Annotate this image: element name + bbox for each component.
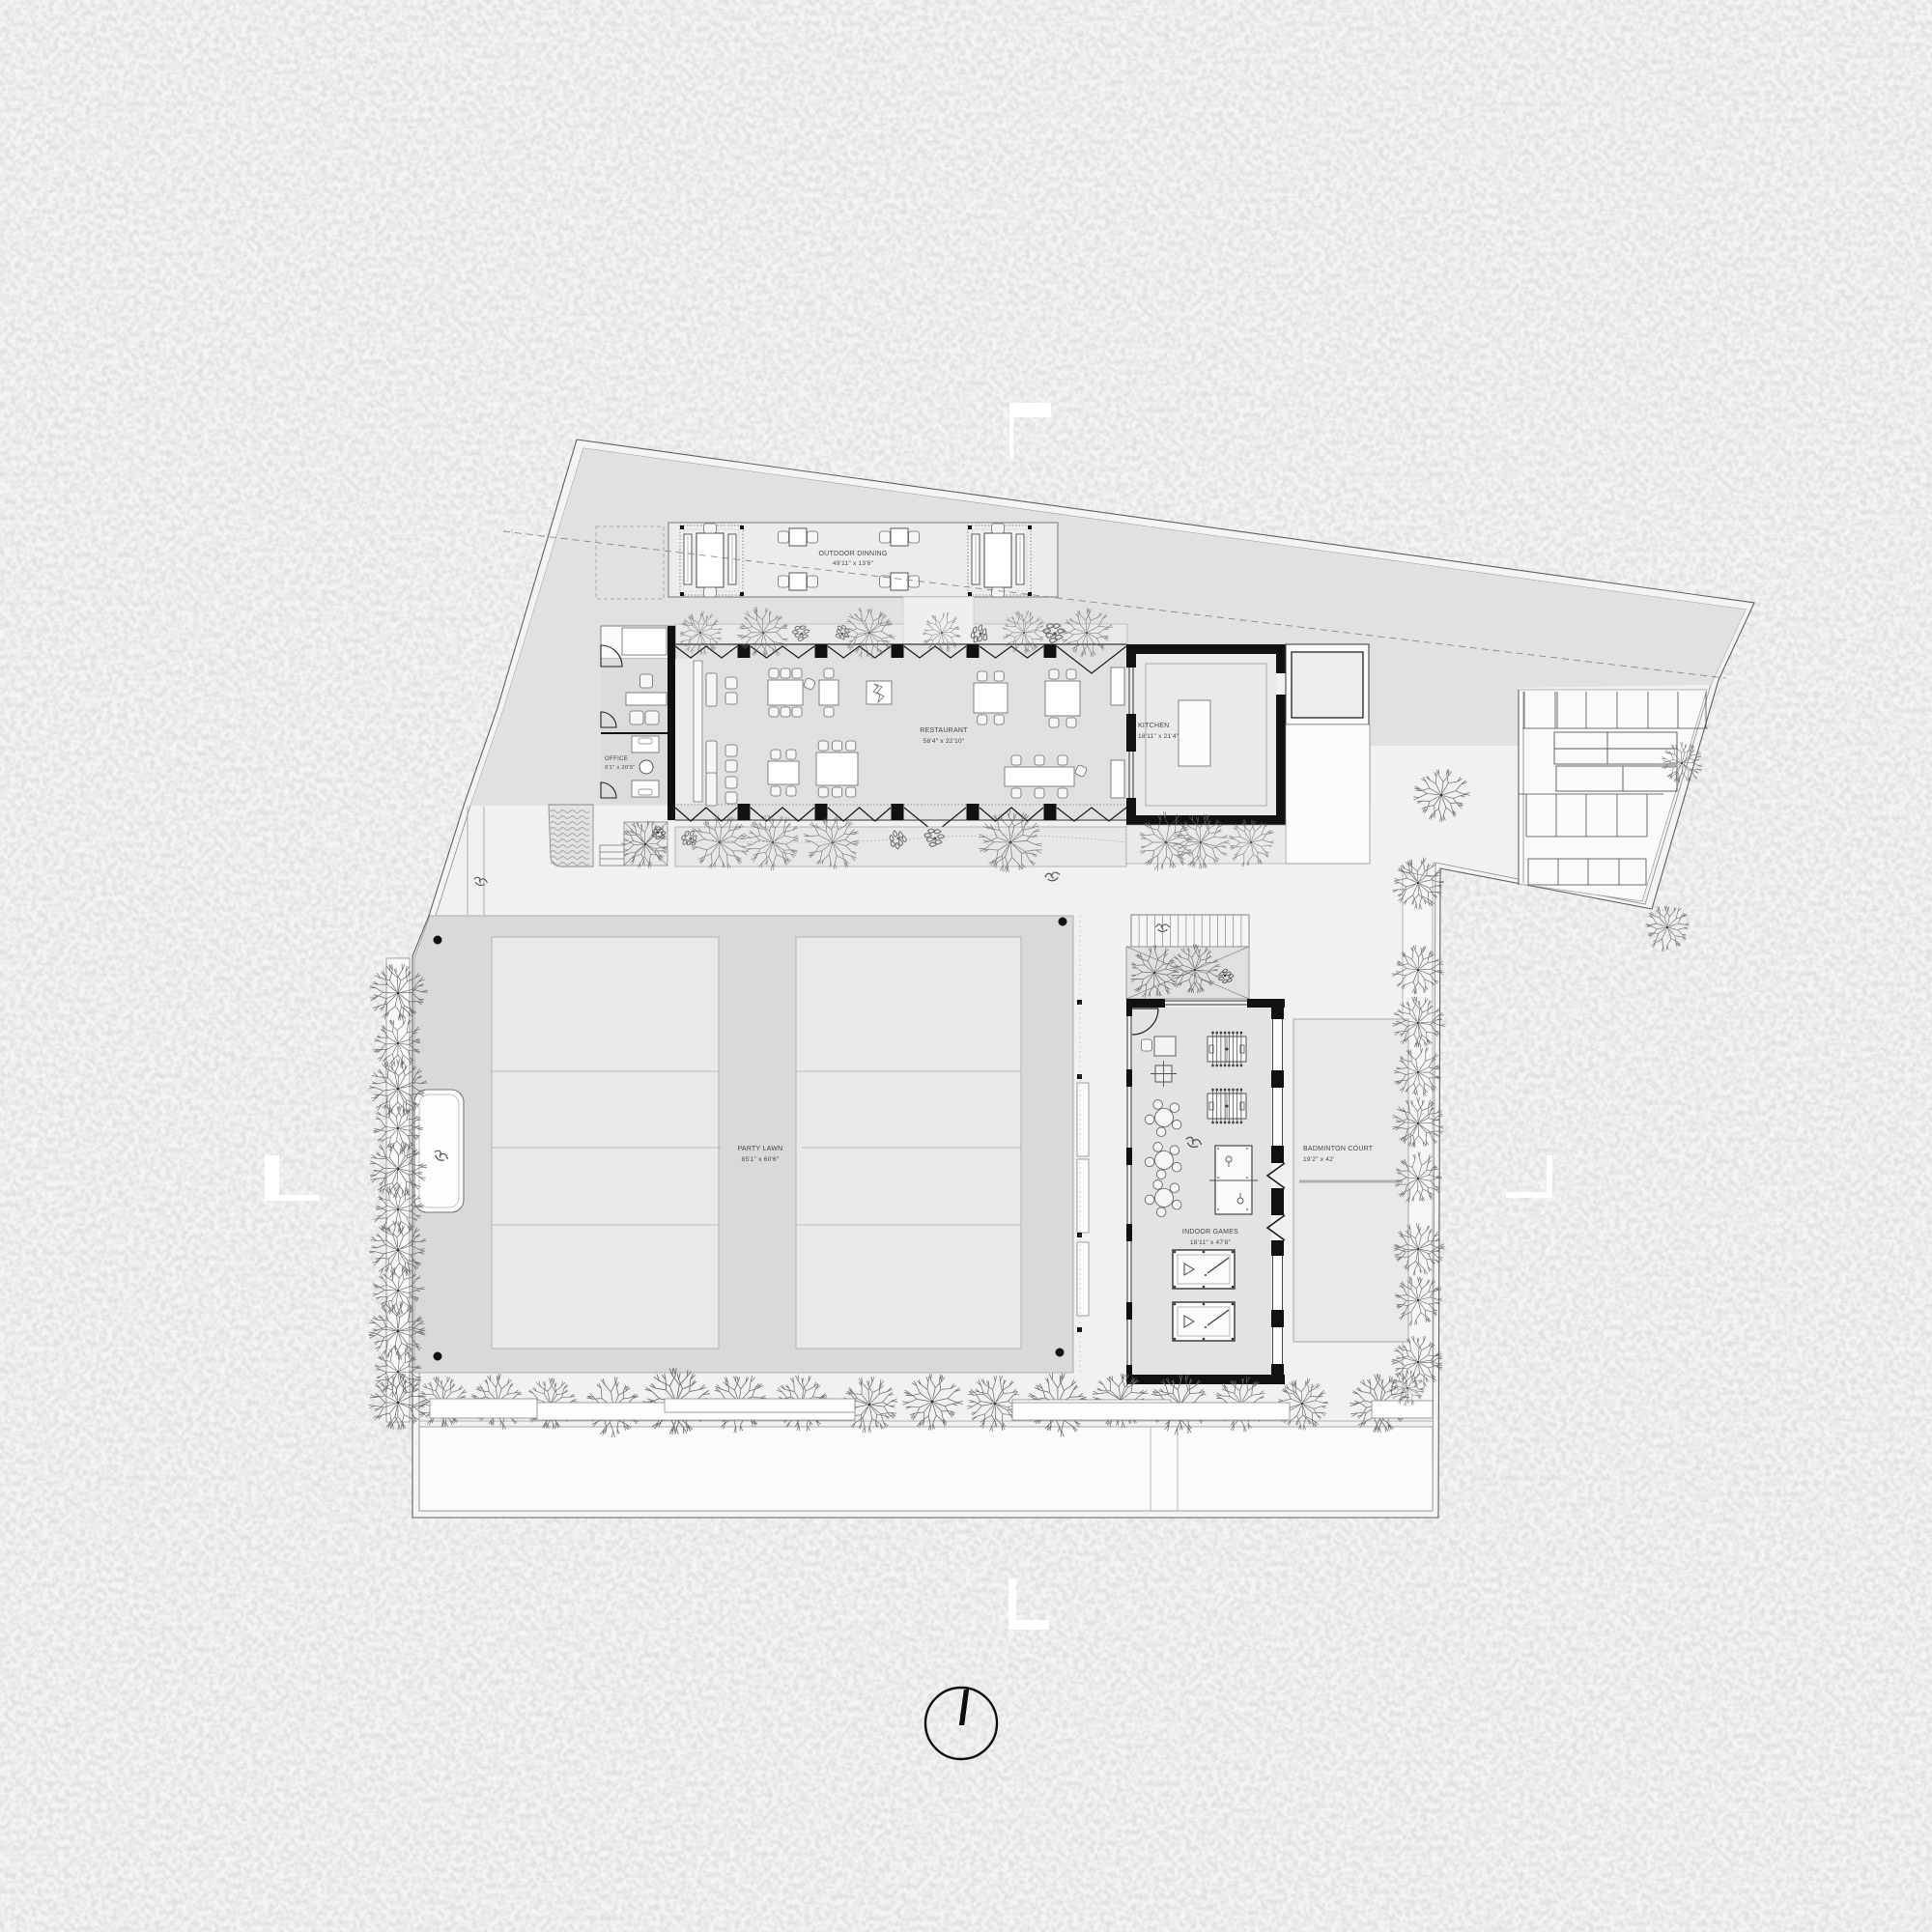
svg-text:19'2" x 42': 19'2" x 42' — [1303, 1156, 1334, 1163]
svg-text:85'1" x 60'6": 85'1" x 60'6" — [742, 1156, 780, 1163]
svg-text:RESTAURANT: RESTAURANT — [920, 727, 968, 734]
svg-text:9'1" x 20'5": 9'1" x 20'5" — [605, 765, 636, 771]
svg-text:OFFICE: OFFICE — [605, 755, 628, 762]
svg-text:18'11" x 47'8": 18'11" x 47'8" — [1190, 1239, 1232, 1246]
svg-text:OUTDOOR DINNING: OUTDOOR DINNING — [818, 551, 887, 557]
svg-text:BADMINTON COURT: BADMINTON COURT — [1303, 1146, 1374, 1152]
svg-text:INDOOR GAMES: INDOOR GAMES — [1182, 1229, 1238, 1236]
svg-text:KITCHEN: KITCHEN — [1138, 723, 1169, 729]
svg-text:58'4" x 22'10": 58'4" x 22'10" — [923, 738, 965, 745]
svg-text:18'11" x 21'4": 18'11" x 21'4" — [1138, 733, 1179, 740]
svg-text:49'11" x 13'6": 49'11" x 13'6" — [833, 560, 874, 567]
svg-text:PARTY LAWN: PARTY LAWN — [738, 1146, 783, 1152]
